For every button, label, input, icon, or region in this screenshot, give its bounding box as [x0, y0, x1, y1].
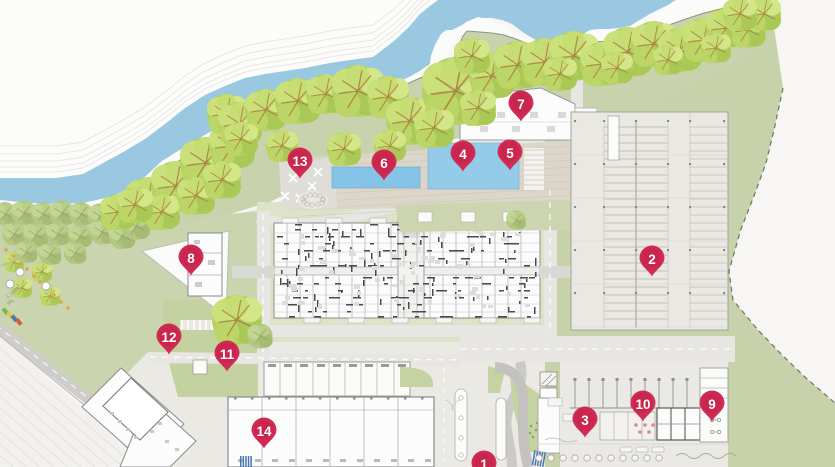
svg-text:12: 12 [161, 330, 176, 345]
svg-text:14: 14 [256, 424, 272, 439]
svg-text:5: 5 [506, 146, 514, 161]
svg-text:2: 2 [648, 252, 656, 267]
svg-text:10: 10 [635, 397, 650, 412]
svg-text:8: 8 [187, 251, 195, 266]
svg-text:3: 3 [581, 413, 589, 428]
svg-text:6: 6 [380, 156, 388, 171]
svg-text:11: 11 [220, 347, 235, 362]
svg-text:7: 7 [517, 97, 525, 112]
svg-text:9: 9 [708, 397, 716, 412]
svg-text:13: 13 [292, 154, 308, 169]
svg-text:1: 1 [480, 457, 488, 467]
svg-text:4: 4 [459, 147, 467, 162]
